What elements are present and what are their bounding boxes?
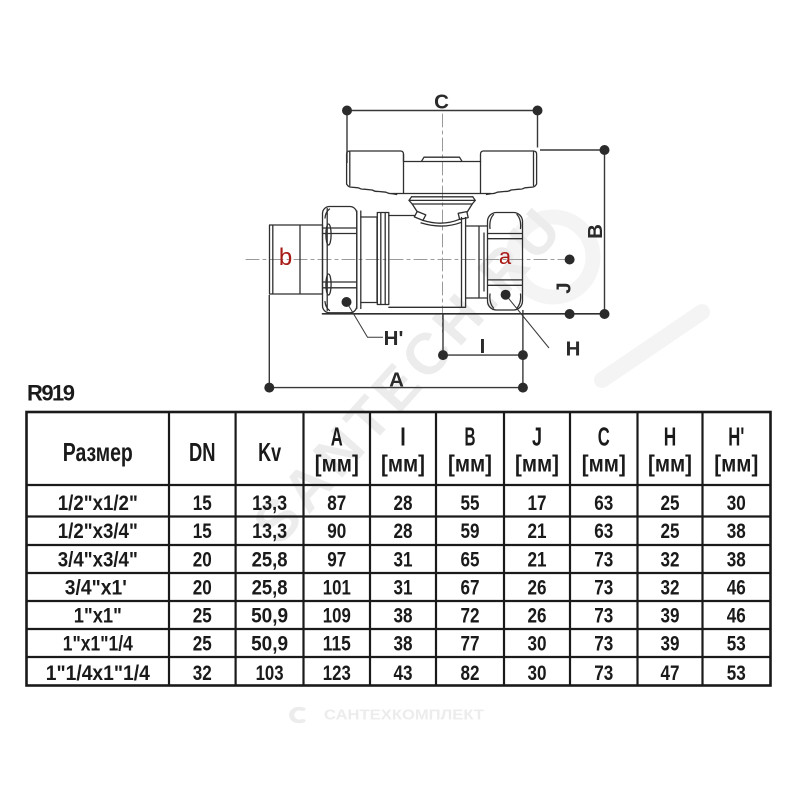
svg-text:73: 73: [594, 577, 613, 600]
svg-text:[мм]: [мм]: [714, 451, 758, 477]
svg-text:B: B: [584, 224, 607, 239]
svg-text:38: 38: [727, 549, 746, 572]
svg-text:32: 32: [661, 549, 680, 572]
svg-text:H: H: [664, 422, 677, 452]
svg-text:H: H: [566, 338, 581, 361]
svg-text:63: 63: [594, 520, 613, 543]
svg-text:3/4"x3/4": 3/4"x3/4": [58, 549, 138, 572]
svg-text:13,3: 13,3: [252, 492, 287, 515]
svg-text:J: J: [532, 422, 542, 452]
svg-text:55: 55: [461, 492, 480, 515]
svg-text:САНТЕХКОМПЛЕКТ: САНТЕХКОМПЛЕКТ: [324, 708, 484, 724]
svg-text:1"x1": 1"x1": [74, 605, 122, 628]
svg-text:Размер: Размер: [63, 437, 133, 467]
svg-text:39: 39: [661, 633, 680, 656]
svg-text:53: 53: [727, 633, 746, 656]
svg-text:109: 109: [323, 605, 351, 628]
svg-text:1"1/4x1"1/4: 1"1/4x1"1/4: [46, 662, 150, 685]
svg-text:1/2"x1/2": 1/2"x1/2": [58, 492, 138, 515]
svg-text:30: 30: [727, 492, 746, 515]
svg-text:1/2"x3/4": 1/2"x3/4": [58, 520, 138, 543]
svg-text:90: 90: [327, 520, 346, 543]
svg-text:39: 39: [661, 605, 680, 628]
svg-text:26: 26: [528, 577, 547, 600]
svg-text:50,9: 50,9: [251, 605, 288, 628]
svg-text:30: 30: [528, 662, 547, 685]
svg-text:115: 115: [323, 633, 351, 656]
svg-text:32: 32: [661, 577, 680, 600]
svg-text:3/4"x1': 3/4"x1': [65, 577, 127, 600]
svg-text:R919: R919: [27, 381, 75, 406]
svg-text:A: A: [389, 369, 404, 392]
svg-text:46: 46: [727, 605, 746, 628]
svg-text:32: 32: [193, 662, 212, 685]
svg-text:13,3: 13,3: [252, 520, 287, 543]
svg-text:101: 101: [323, 577, 351, 600]
svg-text:[мм]: [мм]: [582, 451, 626, 477]
svg-text:25: 25: [661, 520, 680, 543]
svg-text:25: 25: [193, 605, 212, 628]
svg-text:73: 73: [594, 605, 613, 628]
svg-text:59: 59: [461, 520, 480, 543]
svg-text:20: 20: [193, 577, 212, 600]
svg-text:82: 82: [461, 662, 480, 685]
svg-text:B: B: [465, 422, 476, 452]
svg-text:73: 73: [594, 633, 613, 656]
svg-text:73: 73: [594, 662, 613, 685]
svg-text:38: 38: [394, 633, 413, 656]
svg-text:31: 31: [394, 549, 413, 572]
svg-text:123: 123: [323, 662, 351, 685]
svg-text:67: 67: [461, 577, 480, 600]
svg-text:77: 77: [461, 633, 480, 656]
svg-text:DN: DN: [189, 437, 216, 467]
svg-text:63: 63: [594, 492, 613, 515]
svg-text:[мм]: [мм]: [648, 451, 692, 477]
svg-text:30: 30: [528, 633, 547, 656]
svg-text:J: J: [553, 282, 576, 293]
svg-text:72: 72: [461, 605, 480, 628]
svg-text:26: 26: [528, 605, 547, 628]
svg-text:[мм]: [мм]: [315, 451, 359, 477]
svg-text:73: 73: [594, 549, 613, 572]
svg-text:28: 28: [394, 492, 413, 515]
svg-text:21: 21: [528, 549, 547, 572]
svg-text:50,9: 50,9: [251, 633, 288, 656]
svg-text:21: 21: [528, 520, 547, 543]
svg-text:103: 103: [256, 662, 284, 685]
svg-text:1"x1"1/4: 1"x1"1/4: [63, 633, 133, 656]
svg-text:25: 25: [193, 633, 212, 656]
svg-text:H': H': [728, 422, 744, 452]
svg-text:25,8: 25,8: [252, 577, 288, 600]
svg-text:97: 97: [327, 549, 346, 572]
svg-text:[мм]: [мм]: [381, 451, 425, 477]
svg-text:15: 15: [193, 520, 212, 543]
svg-text:A: A: [331, 422, 343, 452]
svg-text:17: 17: [528, 492, 547, 515]
svg-text:C: C: [434, 91, 449, 114]
svg-text:[мм]: [мм]: [515, 451, 559, 477]
svg-text:38: 38: [727, 520, 746, 543]
svg-text:b: b: [279, 244, 292, 271]
svg-text:a: a: [499, 244, 512, 269]
svg-text:I: I: [400, 422, 406, 452]
svg-text:I: I: [480, 335, 486, 358]
svg-text:[мм]: [мм]: [448, 451, 492, 477]
svg-text:25,8: 25,8: [252, 549, 288, 572]
svg-text:28: 28: [394, 520, 413, 543]
svg-text:C: C: [598, 422, 610, 452]
svg-text:46: 46: [727, 577, 746, 600]
svg-text:20: 20: [193, 549, 212, 572]
svg-text:25: 25: [661, 492, 680, 515]
svg-text:31: 31: [394, 577, 413, 600]
svg-text:87: 87: [327, 492, 346, 515]
svg-text:H': H': [384, 327, 404, 350]
svg-text:15: 15: [193, 492, 212, 515]
svg-text:Kv: Kv: [258, 437, 281, 467]
svg-text:65: 65: [461, 549, 480, 572]
svg-text:38: 38: [394, 605, 413, 628]
svg-text:47: 47: [661, 662, 680, 685]
svg-text:53: 53: [727, 662, 746, 685]
svg-text:43: 43: [394, 662, 413, 685]
